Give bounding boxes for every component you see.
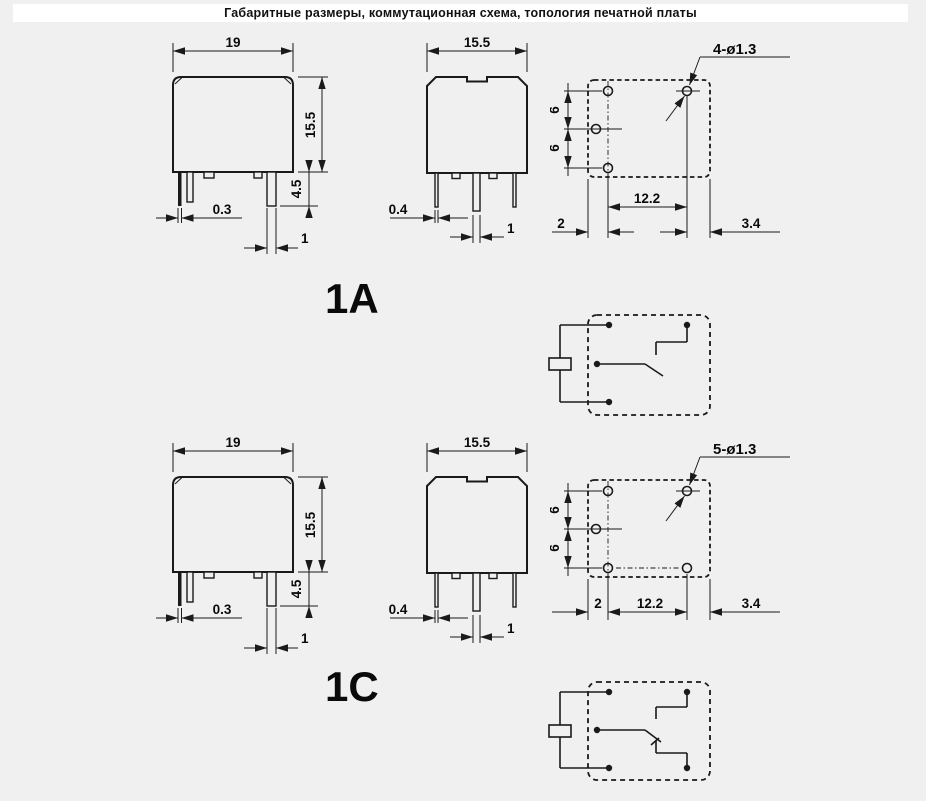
dim-col-pitch: 12.2 — [634, 191, 660, 206]
dim-body-height: 15.5 — [303, 111, 318, 138]
dim-body-depth: 15.5 — [464, 35, 491, 50]
dim-edge-right: 3.4 — [742, 216, 761, 231]
terminal — [594, 727, 600, 733]
side-view-1a: 15.5 0.4 1 — [388, 30, 553, 265]
coil-symbol — [549, 725, 571, 737]
terminal — [684, 322, 690, 328]
front-view-1c: 19 15.5 4.5 0.3 1 — [130, 430, 340, 660]
holes-callout: 5-ø1.3 — [713, 441, 756, 458]
dim-row-pitch: 6 — [550, 106, 562, 114]
dim-pin-width: 1 — [301, 631, 309, 646]
pin — [187, 172, 193, 202]
terminal — [606, 765, 612, 771]
terminal — [594, 361, 600, 367]
dim-edge-right: 3.4 — [742, 596, 761, 611]
dim-edge-left: 2 — [557, 216, 565, 231]
contact-blade — [645, 730, 661, 742]
contact-blade — [645, 364, 663, 376]
pcb-layout-1c: 6 6 2 12.2 3.4 5-ø1.3 — [550, 428, 795, 628]
hole — [683, 564, 692, 573]
side-view-1c: 15.5 0.4 1 — [388, 430, 553, 665]
dim-pin-thickness: 0.4 — [389, 202, 408, 217]
dim-pin-length: 4.5 — [289, 179, 304, 198]
dim-col-pitch: 12.2 — [637, 596, 663, 611]
section-label-1a: 1A — [325, 278, 379, 320]
terminal — [684, 765, 690, 771]
terminal — [606, 399, 612, 405]
dim-pin-thickness: 0.3 — [213, 602, 232, 617]
dim-pin-width: 1 — [301, 231, 309, 246]
title-bar: Габаритные размеры, коммутационная схема… — [13, 4, 908, 22]
terminal — [606, 322, 612, 328]
dim-body-depth: 15.5 — [464, 435, 491, 450]
dim-row-pitch: 6 — [550, 144, 562, 152]
terminal — [684, 689, 690, 695]
dim-body-width: 19 — [225, 35, 240, 50]
page-title: Габаритные размеры, коммутационная схема… — [224, 6, 697, 20]
dim-row-pitch: 6 — [550, 544, 562, 552]
holes-callout: 4-ø1.3 — [713, 41, 756, 58]
circuit-diagram-1c — [518, 658, 748, 801]
dim-body-width: 19 — [225, 435, 240, 450]
dim-pin-width: 1 — [507, 221, 515, 236]
dim-pin-width: 1 — [507, 621, 515, 636]
coil-symbol — [549, 358, 571, 370]
dim-pin-length: 4.5 — [289, 579, 304, 598]
circuit-diagram-1a — [518, 288, 748, 428]
dim-pin-thickness: 0.3 — [213, 202, 232, 217]
pin — [267, 172, 276, 206]
dim-row-pitch: 6 — [550, 506, 562, 514]
page: Габаритные размеры, коммутационная схема… — [0, 0, 926, 801]
pin — [178, 172, 182, 206]
section-label-1c: 1C — [325, 666, 379, 708]
terminal — [606, 689, 612, 695]
dim-pin-thickness: 0.4 — [389, 602, 408, 617]
front-view-1a: 19 15.5 4.5 0.3 1 — [130, 30, 340, 260]
pcb-layout-1a: 6 6 12.2 2 3.4 4-ø1.3 — [550, 28, 795, 243]
dim-body-height: 15.5 — [303, 511, 318, 538]
dim-edge-left: 2 — [594, 596, 602, 611]
